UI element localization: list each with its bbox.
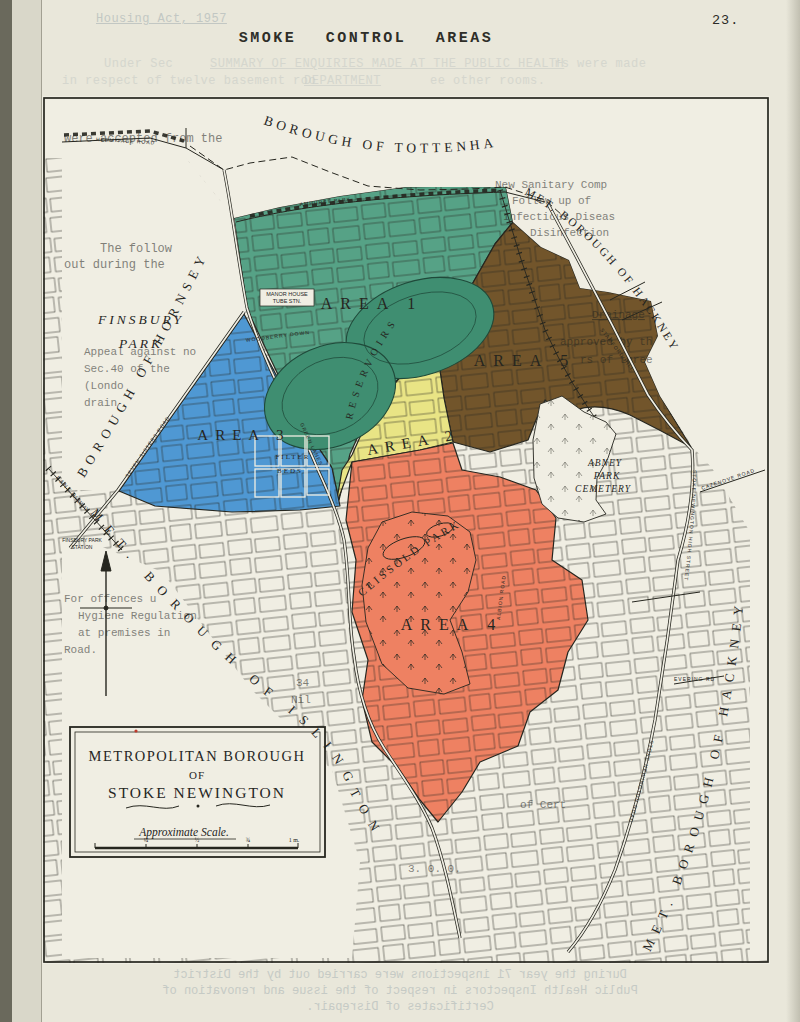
svg-text:Road.: Road.: [64, 644, 97, 656]
svg-text:drain: drain: [84, 397, 117, 409]
svg-text:STATION: STATION: [72, 544, 93, 550]
legend-title-line3: STOKE NEWINGTON: [108, 784, 286, 801]
finsbury-park-label: FINSBURY: [97, 312, 184, 327]
svg-text:Sec.40 of the: Sec.40 of the: [84, 363, 170, 375]
area-4-label: AREA 4: [401, 616, 504, 633]
svg-text:MANOR HOUSE: MANOR HOUSE: [266, 291, 308, 297]
svg-text:For offences u: For offences u: [64, 593, 156, 605]
svg-text:BEDS: BEDS: [277, 467, 303, 475]
page-title: SMOKE CONTROL AREAS: [42, 30, 690, 47]
smoke-control-map: were accepted from the New Sanitary Comp…: [42, 96, 770, 964]
svg-text:¾: ¾: [246, 837, 251, 843]
legend-title-line1: METROPOLITAN BOROUGH: [89, 748, 306, 764]
evering-road-label: EVERING RD: [674, 676, 715, 682]
area-5-label: AREA 5: [474, 352, 577, 369]
scale-label: Approximate Scale.: [138, 826, 229, 839]
bleed-fragment: Public Health Inspectors in respect of t…: [162, 984, 637, 998]
map-svg: were accepted from the New Sanitary Comp…: [42, 96, 770, 964]
svg-text:Drainage: Drainage: [592, 309, 645, 321]
bleedthrough-bottom-row: During the year 71 inspections were carr…: [42, 968, 758, 982]
red-ink-dot: [134, 729, 137, 732]
bleed-fragment: Certificates of Disrepair.: [306, 1000, 493, 1014]
abney-park-cemetery-label: ABNEY: [587, 458, 623, 468]
svg-text:TUBE STN.: TUBE STN.: [273, 298, 302, 304]
svg-text:CEMETERY: CEMETERY: [575, 484, 632, 494]
svg-text:1 m.: 1 m.: [289, 837, 300, 843]
svg-text:out during the: out during the: [64, 258, 165, 272]
bleed-fragment: Under Sec: [104, 57, 173, 71]
svg-text:rs of three: rs of three: [580, 354, 653, 366]
svg-text:¼: ¼: [144, 837, 149, 843]
svg-text:PARK: PARK: [118, 336, 163, 351]
map-legend-cartouche: METROPOLITAN BOROUGH OF STOKE NEWINGTON …: [70, 727, 325, 857]
bleed-fragment: rs were made: [554, 57, 646, 71]
bleedthrough-bottom-row: Certificates of Disrepair.: [42, 1000, 758, 1014]
area-1-label: AREA 1: [321, 295, 424, 312]
svg-text:of Cert: of Cert: [520, 799, 566, 811]
filter-beds-label: FILTER: [275, 453, 310, 461]
svg-text:½: ½: [195, 837, 200, 843]
page-right-edge-shadow: [786, 0, 800, 1022]
legend-title-line2: OF: [189, 769, 205, 781]
scanned-report-page: { "page": { "number": "23.", "title": "S…: [0, 0, 800, 1022]
bleed-fragment: SUMMARY OF ENQUIRIES MADE AT THE PUBLIC …: [210, 57, 564, 71]
svg-text:The follow: The follow: [100, 242, 173, 256]
svg-text:(Londo: (Londo: [84, 380, 124, 392]
bleed-fragment: in respect of twelve basement roo: [62, 74, 316, 88]
area-3-label: AREA 3: [197, 427, 290, 443]
page-number: 23.: [712, 13, 739, 28]
book-binding-edge: [0, 0, 12, 1022]
bleed-fragment: ee other rooms.: [430, 74, 546, 88]
svg-text:PARK: PARK: [593, 471, 621, 481]
page-gutter: [12, 0, 42, 1022]
svg-text:34: 34: [296, 677, 310, 689]
svg-text:at premises in: at premises in: [78, 627, 170, 639]
svg-text:3. 0. 0.: 3. 0. 0.: [408, 863, 461, 875]
manor-house-station-box: MANOR HOUSE TUBE STN.: [260, 289, 314, 306]
bleedthrough-bottom-row: Public Health Inspectors in respect of t…: [42, 984, 758, 998]
bleed-fragment: During the year 71 inspections were carr…: [173, 968, 627, 982]
bleed-fragment: DEPARTMENT: [304, 74, 381, 88]
bleedthrough-heading: Housing Act, 1957: [96, 12, 227, 26]
finsbury-park-station-label: FINSBURY PARK: [62, 537, 102, 543]
